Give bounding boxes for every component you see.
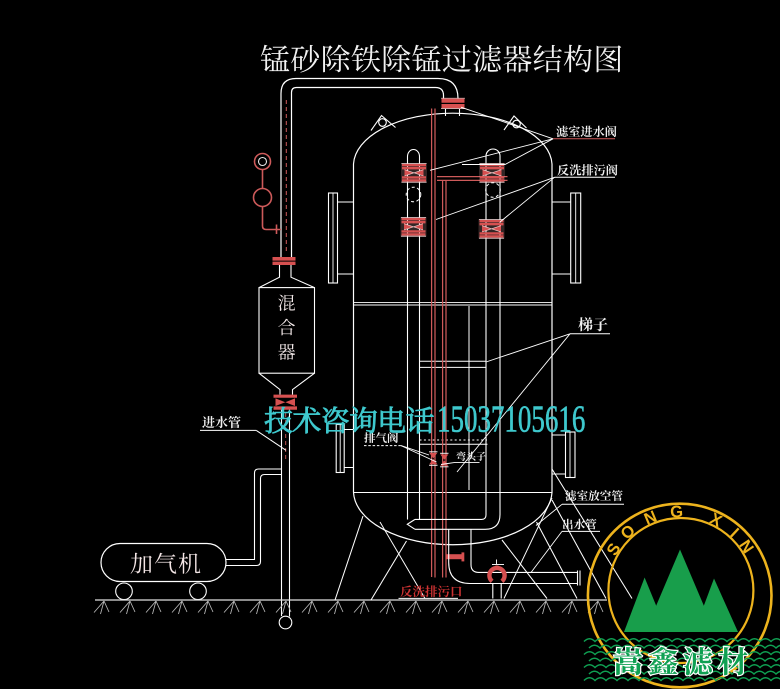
svg-text:G: G — [670, 503, 684, 522]
svg-text:15037105616: 15037105616 — [437, 399, 585, 441]
